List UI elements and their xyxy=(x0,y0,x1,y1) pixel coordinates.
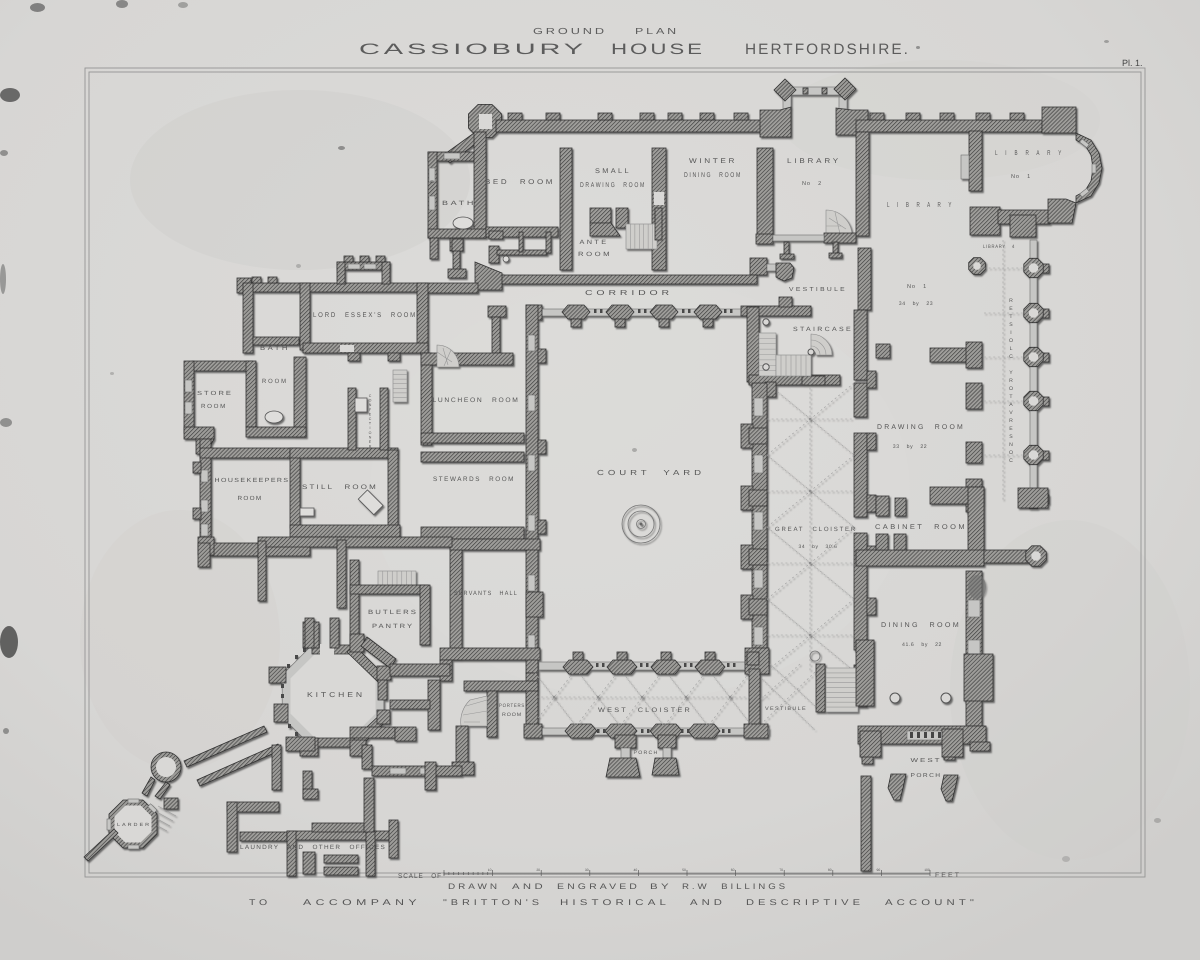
svg-text:LORD ESSEX'S ROOM: LORD ESSEX'S ROOM xyxy=(313,312,417,319)
svg-text:LAUNDRY AND OTHER OFFICES: LAUNDRY AND OTHER OFFICES xyxy=(240,844,386,851)
svg-text:No 1: No 1 xyxy=(1011,174,1031,180)
svg-text:TO: TO xyxy=(249,897,271,907)
svg-text:WEST CLOISTER: WEST CLOISTER xyxy=(598,707,692,714)
svg-text:BUTLERS: BUTLERS xyxy=(368,609,418,616)
svg-text:N: N xyxy=(369,403,372,407)
svg-text:O: O xyxy=(369,431,372,435)
svg-text:L I B R A R Y: L I B R A R Y xyxy=(887,200,953,209)
svg-text:S: S xyxy=(1009,322,1013,328)
svg-text:R: R xyxy=(369,445,372,449)
svg-text:34 by 23: 34 by 23 xyxy=(899,301,934,307)
svg-text:C: C xyxy=(369,394,372,398)
svg-text:70: 70 xyxy=(779,868,783,872)
svg-text:BY: BY xyxy=(650,882,672,891)
svg-text:41.6 by 22: 41.6 by 22 xyxy=(902,642,942,648)
svg-text:VESTIBULE: VESTIBULE xyxy=(789,286,847,293)
svg-text:Pl. 1.: Pl. 1. xyxy=(1122,58,1143,68)
svg-text:30: 30 xyxy=(585,868,589,872)
svg-text:PORCH: PORCH xyxy=(911,773,942,779)
svg-text:ROOM: ROOM xyxy=(201,403,227,410)
svg-text:20: 20 xyxy=(536,868,540,872)
svg-text:Y: Y xyxy=(1009,370,1013,376)
svg-text:R: R xyxy=(1009,378,1013,384)
svg-text:ACCOUNT": ACCOUNT" xyxy=(885,897,978,907)
svg-text:ROOM: ROOM xyxy=(502,712,522,718)
svg-text:50: 50 xyxy=(682,868,686,872)
svg-text:LUNCHEON ROOM: LUNCHEON ROOM xyxy=(433,397,520,404)
svg-text:O: O xyxy=(1009,450,1013,456)
svg-text:HOUSE: HOUSE xyxy=(611,41,705,58)
svg-text:No 2: No 2 xyxy=(802,181,822,187)
svg-text:PANTRY: PANTRY xyxy=(372,623,414,630)
svg-text:E: E xyxy=(1009,306,1013,312)
svg-text:O: O xyxy=(1009,338,1013,344)
svg-text:No 1: No 1 xyxy=(907,284,927,290)
svg-text:O: O xyxy=(1009,386,1013,392)
svg-text:FEET: FEET xyxy=(935,872,961,879)
svg-text:ROOM: ROOM xyxy=(578,251,612,258)
svg-text:N: N xyxy=(1009,442,1013,448)
svg-text:STORE: STORE xyxy=(197,390,233,397)
svg-text:WEST: WEST xyxy=(911,758,942,764)
svg-text:O: O xyxy=(369,399,372,403)
svg-text:CORRIDOR: CORRIDOR xyxy=(585,290,673,297)
svg-text:WINTER: WINTER xyxy=(689,158,737,165)
svg-text:80: 80 xyxy=(828,868,832,872)
svg-text:ACCOMPANY: ACCOMPANY xyxy=(303,897,421,907)
svg-text:R.W BILLINGS: R.W BILLINGS xyxy=(682,882,788,891)
svg-text:KITCHEN: KITCHEN xyxy=(307,692,365,699)
svg-text:DESCRIPTIVE: DESCRIPTIVE xyxy=(746,897,864,907)
svg-text:HERTFORDSHIRE.: HERTFORDSHIRE. xyxy=(745,41,910,58)
svg-text:R: R xyxy=(1009,418,1013,424)
svg-text:I: I xyxy=(1010,330,1011,336)
svg-text:DINING ROOM: DINING ROOM xyxy=(881,622,961,629)
svg-text:SCALE OF: SCALE OF xyxy=(398,873,442,880)
svg-text:PORCH: PORCH xyxy=(634,750,659,756)
svg-text:CASSIOBURY: CASSIOBURY xyxy=(359,41,587,58)
svg-text:ROOM: ROOM xyxy=(262,378,288,385)
svg-text:34 by 30.6: 34 by 30.6 xyxy=(799,544,838,550)
svg-text:E: E xyxy=(1009,426,1013,432)
svg-text:C: C xyxy=(369,417,372,421)
svg-text:A: A xyxy=(1009,402,1013,408)
svg-text:PLAN: PLAN xyxy=(635,26,679,36)
svg-text:N: N xyxy=(369,435,372,439)
svg-text:COURT YARD: COURT YARD xyxy=(597,468,705,477)
svg-text:"BRITTON'S: "BRITTON'S xyxy=(443,897,543,907)
svg-text:LIBRARY 4: LIBRARY 4 xyxy=(983,244,1015,250)
svg-text:DINING ROOM: DINING ROOM xyxy=(684,172,742,179)
svg-text:CABINET ROOM: CABINET ROOM xyxy=(875,524,967,531)
svg-text:DRAWING ROOM: DRAWING ROOM xyxy=(580,182,646,189)
svg-text:SMALL: SMALL xyxy=(595,168,631,175)
svg-text:60: 60 xyxy=(731,868,735,872)
svg-text:L: L xyxy=(1010,346,1013,352)
svg-text:AND: AND xyxy=(690,897,726,907)
svg-text:V: V xyxy=(1009,410,1013,416)
svg-text:100: 100 xyxy=(924,868,930,872)
svg-text:L I B R A R Y: L I B R A R Y xyxy=(995,150,1063,157)
svg-text:ENGRAVED: ENGRAVED xyxy=(557,882,640,891)
svg-text:BATH: BATH xyxy=(442,200,476,207)
svg-text:LARDER: LARDER xyxy=(117,822,151,827)
svg-text:10: 10 xyxy=(488,868,492,872)
svg-text:GREAT CLOISTER: GREAT CLOISTER xyxy=(775,526,857,533)
svg-text:C: C xyxy=(1009,458,1013,464)
svg-text:90: 90 xyxy=(877,868,881,872)
svg-text:LIBRARY: LIBRARY xyxy=(787,158,841,165)
svg-text:PORTERS: PORTERS xyxy=(499,703,525,709)
svg-text:STAIRCASE: STAIRCASE xyxy=(793,326,853,333)
svg-text:GROUND: GROUND xyxy=(533,26,607,36)
svg-text:STEWARDS ROOM: STEWARDS ROOM xyxy=(433,476,515,483)
svg-text:AND: AND xyxy=(512,882,546,891)
svg-text:ANTE: ANTE xyxy=(580,239,609,246)
svg-text:HISTORICAL: HISTORICAL xyxy=(560,897,670,907)
svg-text:HOUSEKEEPERS: HOUSEKEEPERS xyxy=(215,477,290,484)
svg-text:BATH: BATH xyxy=(260,345,290,352)
svg-text:DRAWN: DRAWN xyxy=(448,882,500,891)
svg-text:C: C xyxy=(1009,354,1013,360)
svg-text:ROOM: ROOM xyxy=(238,495,263,502)
svg-text:VESTIBULE: VESTIBULE xyxy=(765,706,807,712)
svg-text:S: S xyxy=(1009,434,1013,440)
svg-text:SERVANTS HALL: SERVANTS HALL xyxy=(454,590,518,597)
svg-text:STILL ROOM: STILL ROOM xyxy=(302,484,378,491)
svg-text:40: 40 xyxy=(634,868,638,872)
svg-text:R: R xyxy=(1009,298,1013,304)
svg-text:DRAWING ROOM: DRAWING ROOM xyxy=(877,424,965,431)
svg-text:33 by 22: 33 by 22 xyxy=(893,444,928,450)
svg-text:BED ROOM: BED ROOM xyxy=(485,179,555,186)
svg-text:I: I xyxy=(370,426,371,430)
